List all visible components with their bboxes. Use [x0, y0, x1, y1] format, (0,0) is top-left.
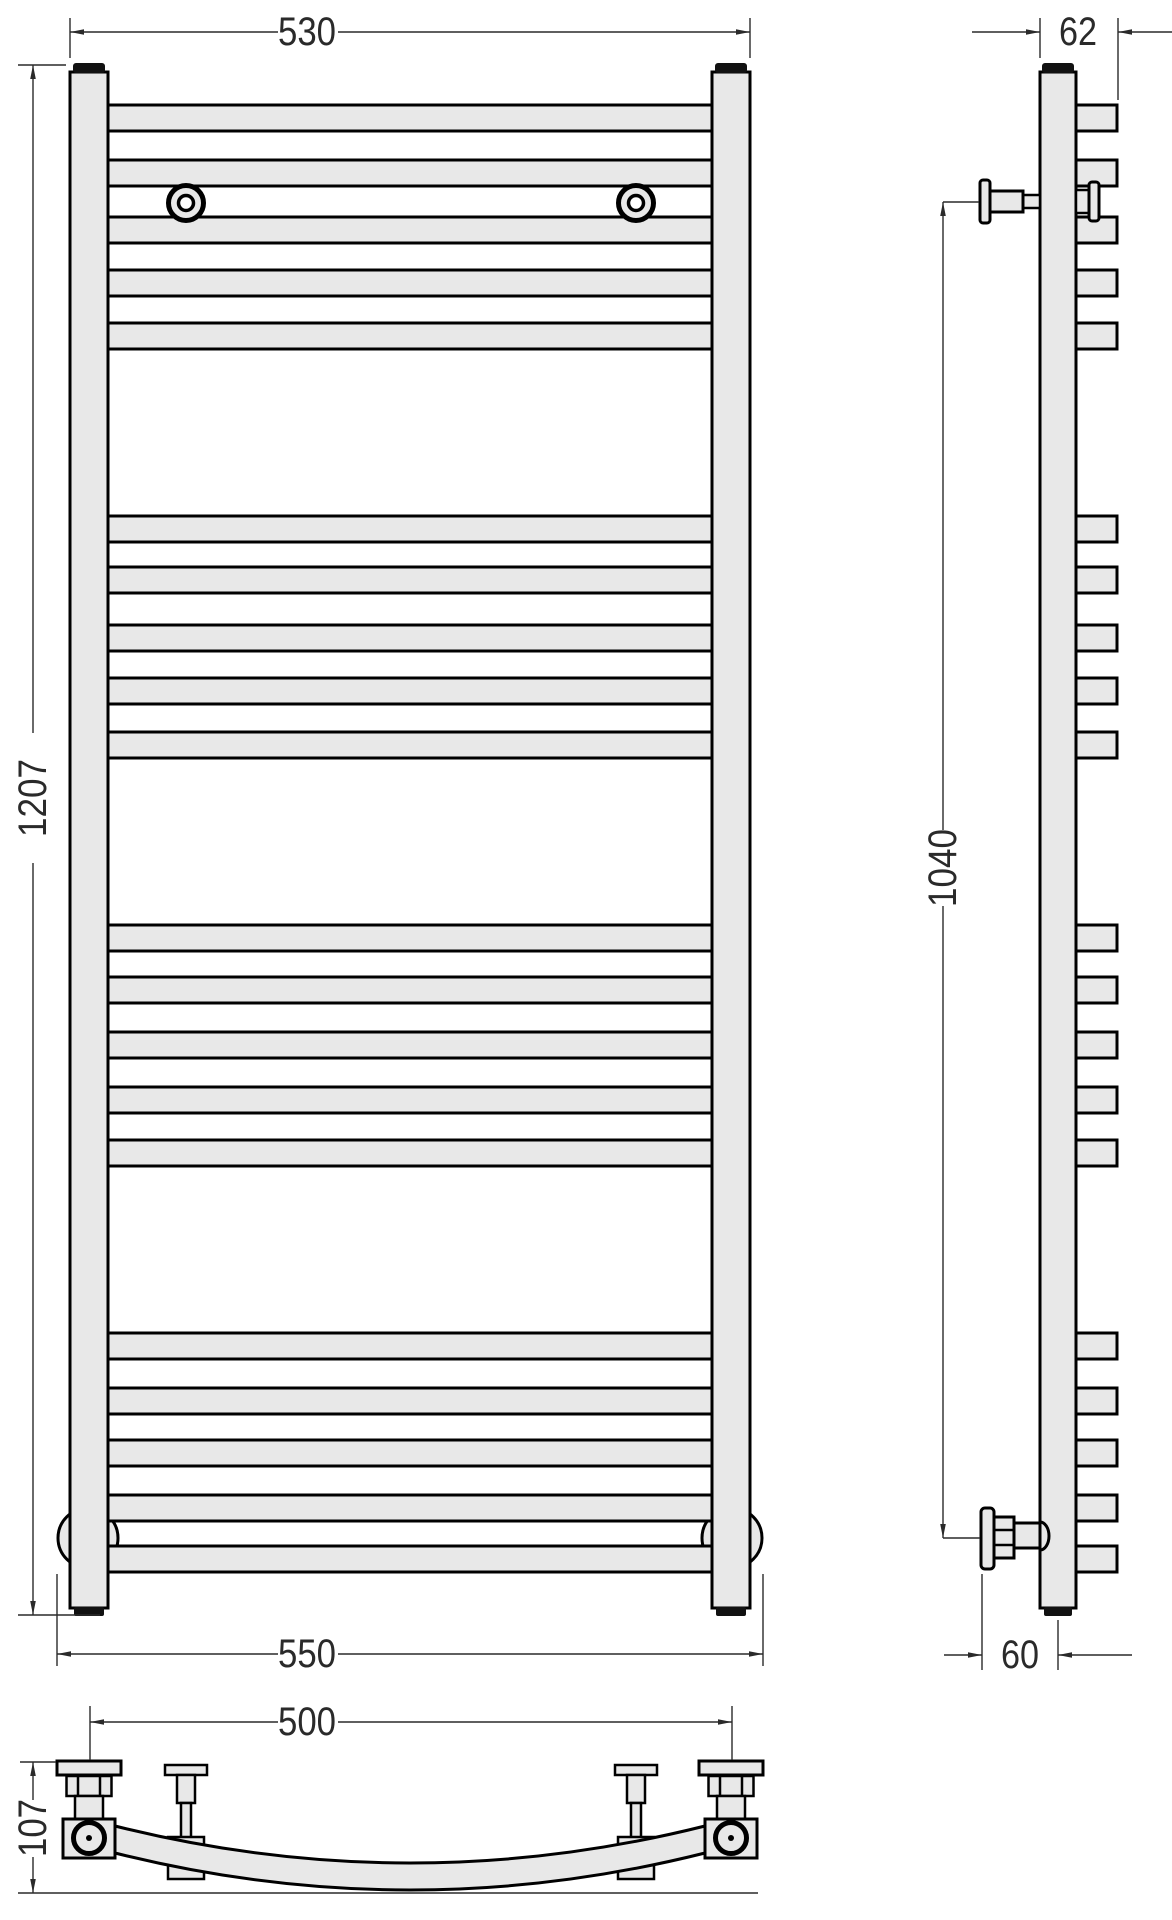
bracket-plate — [615, 1765, 657, 1775]
arrow-right-icon — [1026, 29, 1040, 35]
dim-500: 500 — [90, 1700, 732, 1760]
front-rung — [100, 1333, 720, 1359]
top-connection-valve — [980, 180, 1040, 223]
front-rung — [100, 625, 720, 651]
arrow-up-icon — [940, 202, 946, 216]
arrow-up-icon — [30, 1762, 36, 1776]
front-rung — [100, 567, 720, 593]
wall-bracket-right — [619, 186, 654, 221]
front-rung — [100, 977, 720, 1003]
dim-550: 550 — [57, 1574, 763, 1676]
side-view — [980, 63, 1117, 1616]
fitting-hex-nut — [67, 1776, 112, 1796]
front-rung — [100, 1032, 720, 1058]
front-rung — [100, 1388, 720, 1414]
bracket-pin — [181, 1803, 191, 1839]
front-right-collector — [712, 72, 750, 1608]
top-cap-right — [715, 63, 747, 73]
curved-rung-tube — [115, 1826, 705, 1890]
front-rung — [100, 105, 720, 131]
valve-stem — [1023, 195, 1040, 208]
dim-62-label: 62 — [1059, 10, 1097, 54]
front-rung — [100, 1440, 720, 1466]
wall-bracket-inner-ring — [629, 196, 644, 211]
arrow-up-icon — [30, 65, 36, 79]
valve-handle — [981, 1508, 994, 1569]
drawing-svg: 530 62 1207 1040 550 — [0, 0, 1172, 1920]
fitting-flange — [57, 1761, 121, 1775]
front-rung — [100, 678, 720, 704]
valve-stem — [1014, 1523, 1040, 1548]
front-left-collector — [70, 72, 108, 1608]
fitting-center-dot — [728, 1835, 734, 1841]
arrow-right-icon — [718, 1719, 732, 1725]
return-fitting-body — [1076, 190, 1089, 213]
dim-530: 530 — [70, 10, 750, 58]
arrow-right-icon — [968, 1652, 982, 1658]
arrow-left-icon — [70, 29, 84, 35]
dim-1207-label: 1207 — [11, 759, 55, 837]
dim-530-lines — [70, 18, 750, 58]
dim-550-lines — [57, 1574, 763, 1666]
front-rung — [100, 323, 720, 349]
side-top-cap — [1042, 63, 1074, 73]
top-return-fitting — [1076, 182, 1099, 221]
bracket-pin — [631, 1803, 641, 1839]
bracket-stem — [627, 1775, 645, 1803]
front-rung — [100, 160, 720, 186]
arrow-left-icon — [1058, 1652, 1072, 1658]
front-rung — [100, 732, 720, 758]
corner-fitting-right — [699, 1761, 763, 1858]
valve-handle — [980, 180, 990, 223]
front-view — [58, 63, 762, 1616]
dim-550-label: 550 — [278, 1632, 336, 1676]
valve-body — [990, 191, 1023, 212]
front-rungs — [100, 105, 720, 1572]
dim-500-lines — [90, 1706, 732, 1760]
front-rung — [100, 1546, 720, 1572]
dim-60: 60 — [944, 1574, 1132, 1677]
arrow-down-icon — [30, 1879, 36, 1893]
dim-60-label: 60 — [1001, 1633, 1039, 1677]
valve-hex-body — [994, 1517, 1014, 1558]
fitting-center-dot — [86, 1835, 92, 1841]
arrow-down-icon — [940, 1524, 946, 1538]
fitting-hex-nut — [709, 1776, 754, 1796]
wall-bracket-inner-ring — [179, 196, 194, 211]
arrow-right-icon — [749, 1651, 763, 1657]
dim-1040-label: 1040 — [921, 829, 965, 907]
wall-bracket-left — [169, 186, 204, 221]
dim-530-label: 530 — [278, 10, 336, 54]
bottom-cap-right — [716, 1607, 746, 1616]
front-rung — [100, 1140, 720, 1166]
arrow-down-icon — [30, 1601, 36, 1615]
side-bottom-cap — [1044, 1607, 1072, 1616]
front-rung — [100, 270, 720, 296]
dim-1040: 1040 — [921, 202, 980, 1538]
technical-drawing-towel-radiator: 530 62 1207 1040 550 — [0, 0, 1172, 1920]
fitting-neck — [717, 1796, 745, 1819]
arrow-right-icon — [736, 29, 750, 35]
corner-fitting-left — [57, 1761, 121, 1858]
side-collector-bar — [1040, 72, 1076, 1608]
front-rung — [100, 1495, 720, 1521]
arrow-left-icon — [90, 1719, 104, 1725]
front-rung — [100, 925, 720, 951]
bracket-plate — [165, 1765, 207, 1775]
bracket-stem — [177, 1775, 195, 1803]
arrow-left-icon — [57, 1651, 71, 1657]
valve-dome — [1040, 1522, 1049, 1550]
bottom-view — [57, 1761, 763, 1890]
front-rung — [100, 1087, 720, 1113]
fitting-flange — [699, 1761, 763, 1775]
front-rung — [100, 516, 720, 542]
dim-107-label: 107 — [11, 1799, 55, 1857]
top-cap-left — [73, 63, 105, 73]
return-fitting-plate — [1089, 182, 1099, 221]
arrow-left-icon — [1118, 29, 1132, 35]
dim-500-label: 500 — [278, 1700, 336, 1744]
fitting-neck — [75, 1796, 103, 1819]
